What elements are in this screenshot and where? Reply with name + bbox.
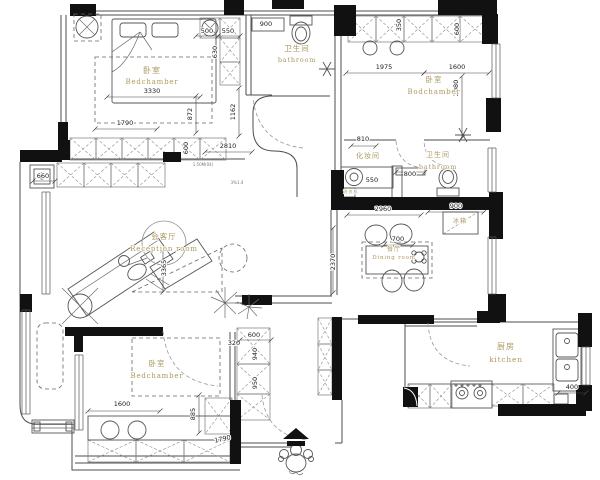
bedroom-top-left-label-zh: 卧室 bbox=[143, 65, 161, 75]
downlight-1 bbox=[363, 41, 377, 55]
dim-1600-bl: 1600 bbox=[114, 400, 131, 408]
dim-900-fridge: 900 bbox=[450, 202, 462, 210]
dim-500: 500 bbox=[201, 27, 213, 35]
bathroom-top-label-en: bathroom bbox=[278, 56, 316, 64]
dim-1600-tr: 1600 bbox=[449, 63, 466, 71]
dim-550-mid: 550 bbox=[366, 176, 378, 184]
dimensions-layer: 3330179087211625005506309002810600660336… bbox=[31, 19, 589, 445]
bedroom-bl-counter bbox=[88, 338, 233, 440]
note-slope: 3%1.4 bbox=[231, 180, 244, 185]
floor-plan: 3330179087211625005506309002810600660336… bbox=[0, 0, 600, 480]
dim-800: 800 bbox=[404, 170, 416, 178]
windows-layer bbox=[22, 44, 590, 430]
dim-600-tr: 600 bbox=[453, 23, 461, 35]
kitchen-label-zh: 厨房 bbox=[497, 341, 515, 351]
dim-600-tl: 600 bbox=[182, 142, 190, 154]
dim-2960: 2960 bbox=[375, 205, 392, 213]
fridge-label: 冰箱 bbox=[453, 217, 467, 225]
dim-900-top: 900 bbox=[260, 20, 272, 28]
balcony-planter bbox=[32, 323, 74, 433]
structure-lines bbox=[20, 11, 578, 470]
washer-label: 洗衣机 bbox=[344, 188, 359, 194]
ceiling-fan-symbol bbox=[74, 14, 101, 41]
bathroom-middle-label-en: bathroom bbox=[419, 163, 457, 171]
dim-550-tl: 550 bbox=[222, 27, 234, 35]
dim-400: 400 bbox=[566, 383, 578, 391]
dim-700: 700 bbox=[392, 235, 404, 243]
dim-940: 940 bbox=[251, 348, 259, 360]
dim-660: 660 bbox=[37, 172, 49, 180]
dim-600-entry: 600 bbox=[248, 331, 260, 339]
dim-3330: 3330 bbox=[144, 87, 161, 95]
reception-room-label-zh: 会客厅 bbox=[151, 231, 177, 241]
dim-872: 872 bbox=[186, 108, 194, 120]
light-symbol-1 bbox=[319, 62, 335, 76]
reception-room-label-en: Reception room bbox=[130, 245, 198, 253]
dim-350: 350 bbox=[395, 19, 403, 31]
dim-885: 885 bbox=[189, 408, 197, 420]
person-entering bbox=[279, 445, 314, 475]
downlight-2 bbox=[390, 41, 404, 55]
cabinet-cell bbox=[318, 370, 332, 395]
dim-950: 950 bbox=[251, 377, 259, 389]
door-arc-kitchen bbox=[428, 323, 470, 366]
dim-630: 630 bbox=[211, 46, 219, 58]
symbols-layer bbox=[62, 14, 471, 324]
dim-1162: 1162 bbox=[229, 104, 237, 121]
door-swings bbox=[163, 98, 470, 440]
dim-1790-bl: 1790 bbox=[214, 433, 232, 444]
bedroom-bottom-left-label-zh: 卧室 bbox=[149, 358, 166, 368]
reception-dashed-circle bbox=[219, 244, 247, 272]
bedroom-top-right-label-zh: 卧室 bbox=[426, 74, 443, 84]
dim-1975: 1975 bbox=[376, 63, 393, 71]
toilet-top-bathroom bbox=[290, 16, 312, 44]
dim-2370: 2370 bbox=[329, 254, 337, 271]
axis-circle-symbol bbox=[62, 288, 98, 324]
dressing-room-label-zh: 化妆间 bbox=[356, 151, 380, 160]
toilet-middle-bathroom bbox=[437, 168, 459, 196]
dim-810: 810 bbox=[357, 135, 369, 143]
kitchen-label-en: kitchen bbox=[489, 355, 523, 364]
bathroom-top-label-zh: 卫生间 bbox=[284, 43, 310, 53]
dining-room-label-zh: 餐厅 bbox=[387, 245, 401, 253]
gas-stove bbox=[451, 381, 492, 408]
dining-room-label-en: Dining room bbox=[372, 255, 416, 261]
dim-3365: 3365 bbox=[160, 260, 168, 277]
bedroom-top-left-label-en: Bedchamber bbox=[126, 78, 179, 86]
dim-320: 320 bbox=[228, 339, 240, 347]
door-arc-top-bathroom bbox=[253, 98, 303, 148]
dim-1790-tl: 1790 bbox=[117, 119, 134, 127]
bedroom-top-right-label-en: Bodchamber bbox=[407, 88, 460, 96]
dim-2810: 2810 bbox=[220, 142, 237, 150]
note-level: 1.50M(04) bbox=[193, 162, 214, 167]
room-labels-layer: 卧室Bedchamber卫生间bathroom卧室Bodchamber化妆间卫生… bbox=[126, 43, 523, 380]
floor-plan-svg: 3330179087211625005506309002810600660336… bbox=[0, 0, 600, 480]
people-layer bbox=[279, 445, 314, 475]
bathroom-middle-label-zh: 卫生间 bbox=[426, 150, 450, 159]
bedroom-bottom-left-label-en: Bedchamber bbox=[131, 372, 184, 380]
